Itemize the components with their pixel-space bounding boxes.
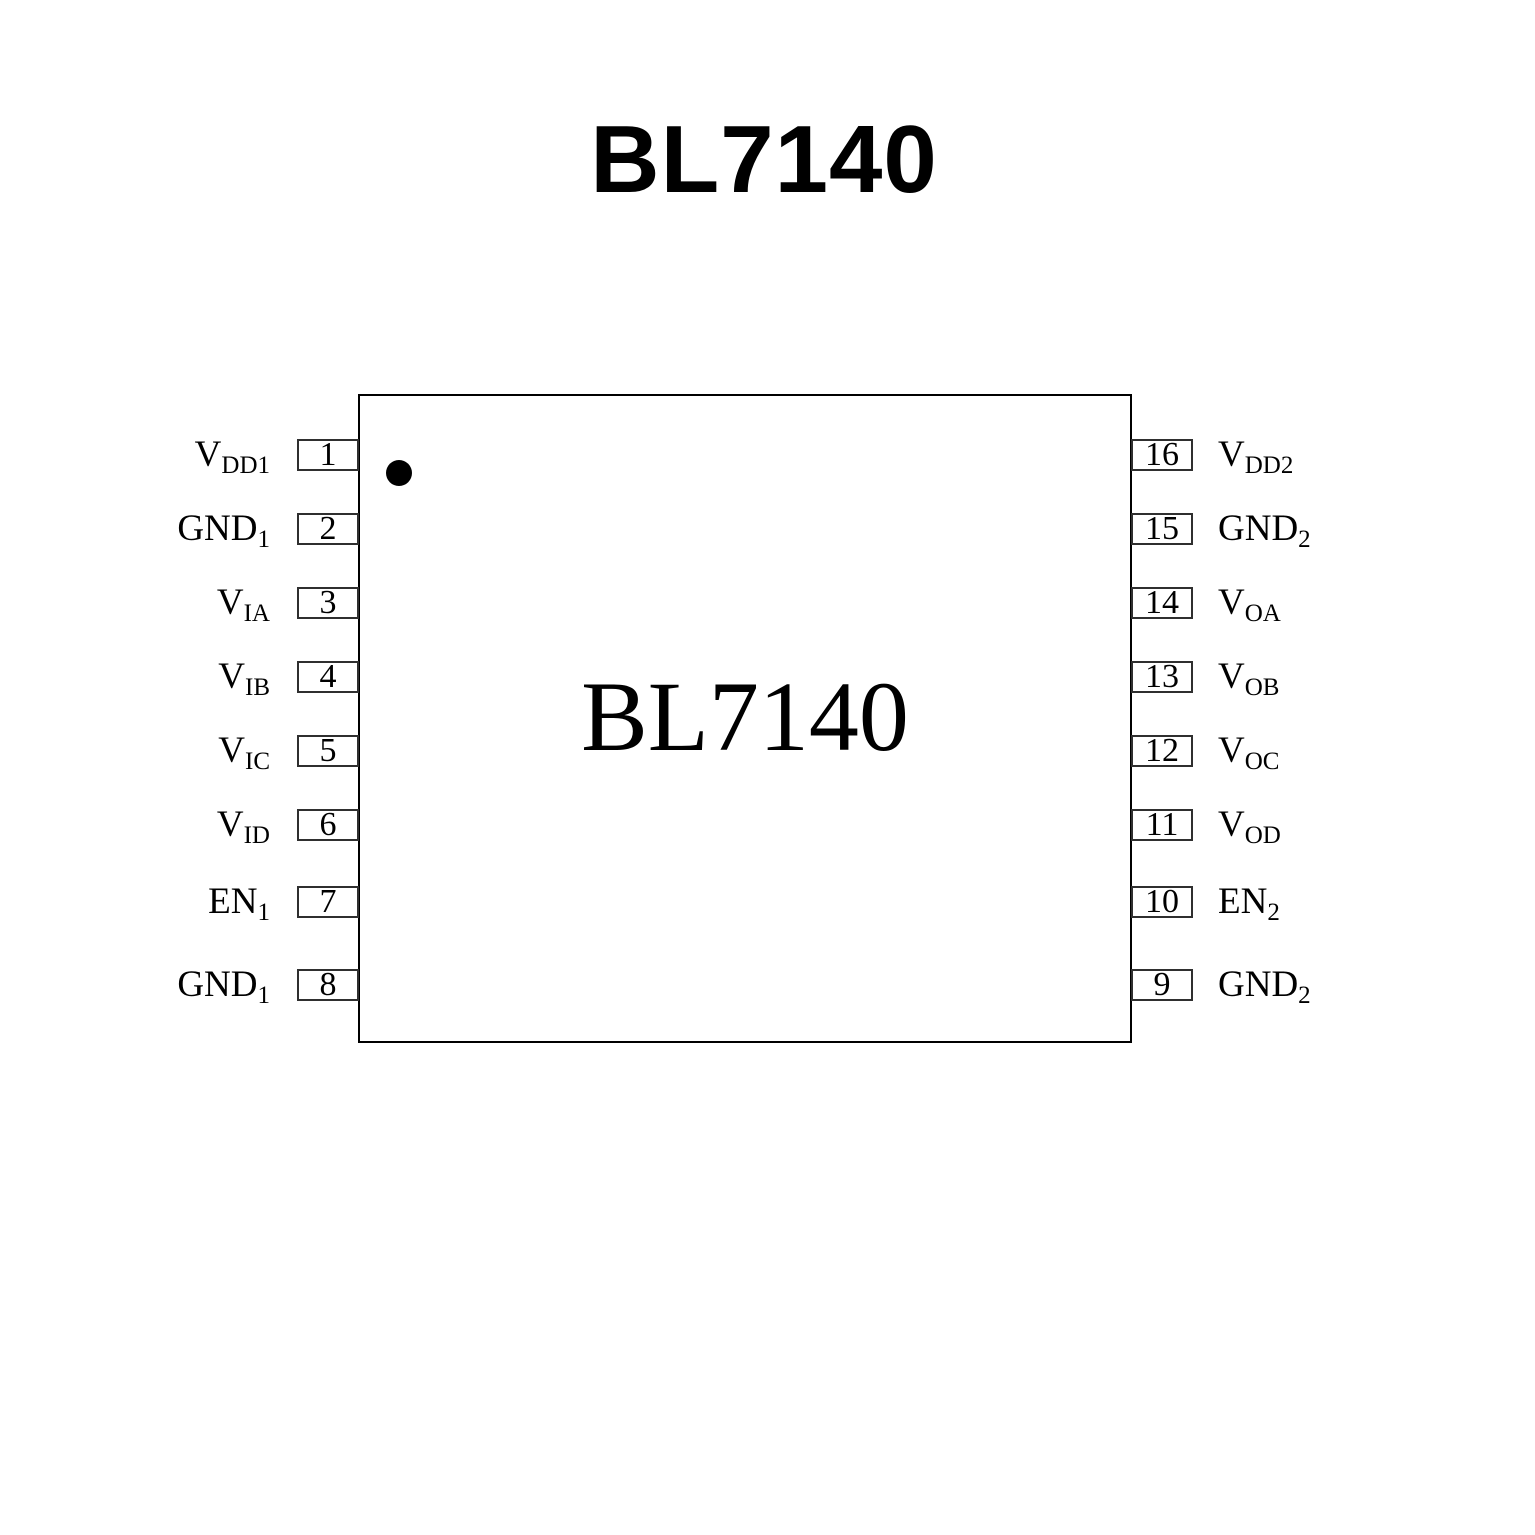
pin-row-right-13: 13 VOB <box>1131 657 1535 697</box>
pin-number-7: 7 <box>320 885 337 919</box>
pin-label-vib: VIB <box>218 657 270 697</box>
pin-box-11: 11 <box>1131 809 1193 841</box>
pin-label-vdd2: VDD2 <box>1218 435 1293 475</box>
pin-label-via: VIA <box>217 583 270 623</box>
pin-row-right-9: 9 GND2 <box>1131 965 1535 1005</box>
pin-label-vdd1: VDD1 <box>195 435 270 475</box>
pin-row-left-1: VDD1 1 <box>0 435 359 475</box>
pin-number-9: 9 <box>1154 968 1171 1002</box>
pin-label-voa: VOA <box>1218 583 1281 623</box>
pin-box-1: 1 <box>297 439 359 471</box>
pin-row-left-4: VIB 4 <box>0 657 359 697</box>
pin-label-vic: VIC <box>218 731 270 771</box>
pin-number-4: 4 <box>320 660 337 694</box>
pin-box-9: 9 <box>1131 969 1193 1001</box>
pin-number-3: 3 <box>320 586 337 620</box>
pin-number-12: 12 <box>1145 734 1179 768</box>
pin-row-right-16: 16 VDD2 <box>1131 435 1535 475</box>
pin-label-vob: VOB <box>1218 657 1279 697</box>
pin-number-8: 8 <box>320 968 337 1002</box>
pin-number-6: 6 <box>320 808 337 842</box>
pin-number-11: 11 <box>1146 808 1179 842</box>
pin-number-13: 13 <box>1145 660 1179 694</box>
pin-row-left-3: VIA 3 <box>0 583 359 623</box>
pin-row-right-15: 15 GND2 <box>1131 509 1535 549</box>
pin-1-indicator-dot-icon <box>386 460 412 486</box>
pin-box-12: 12 <box>1131 735 1193 767</box>
pin-number-5: 5 <box>320 734 337 768</box>
pin-label-en1: EN1 <box>208 882 270 922</box>
pin-label-vod: VOD <box>1218 805 1281 845</box>
pin-box-6: 6 <box>297 809 359 841</box>
pin-row-right-14: 14 VOA <box>1131 583 1535 623</box>
pin-row-left-7: EN1 7 <box>0 882 359 922</box>
chip-label: BL7140 <box>358 664 1132 770</box>
pin-number-1: 1 <box>320 438 337 472</box>
pin-row-right-10: 10 EN2 <box>1131 882 1535 922</box>
pin-box-7: 7 <box>297 886 359 918</box>
pin-label-gnd1-top: GND1 <box>177 509 270 549</box>
pin-row-right-12: 12 VOC <box>1131 731 1535 771</box>
pin-box-16: 16 <box>1131 439 1193 471</box>
pinout-diagram-page: BL7140 BL7140 VDD1 1 GND1 2 VIA 3 VIB 4 … <box>0 0 1535 1535</box>
pin-box-2: 2 <box>297 513 359 545</box>
pin-box-15: 15 <box>1131 513 1193 545</box>
pin-box-14: 14 <box>1131 587 1193 619</box>
pin-box-4: 4 <box>297 661 359 693</box>
pin-label-gnd1-bottom: GND1 <box>177 965 270 1005</box>
pin-box-10: 10 <box>1131 886 1193 918</box>
pin-number-2: 2 <box>320 512 337 546</box>
pin-label-en2: EN2 <box>1218 882 1280 922</box>
pin-box-3: 3 <box>297 587 359 619</box>
pin-row-left-2: GND1 2 <box>0 509 359 549</box>
pin-box-8: 8 <box>297 969 359 1001</box>
pin-number-14: 14 <box>1145 586 1179 620</box>
pin-label-gnd2-top: GND2 <box>1218 509 1311 549</box>
pin-number-16: 16 <box>1145 438 1179 472</box>
pin-label-voc: VOC <box>1218 731 1279 771</box>
pin-row-right-11: 11 VOD <box>1131 805 1535 845</box>
pin-box-5: 5 <box>297 735 359 767</box>
page-title: BL7140 <box>0 112 1528 208</box>
pin-number-15: 15 <box>1145 512 1179 546</box>
pin-label-gnd2-bottom: GND2 <box>1218 965 1311 1005</box>
pin-number-10: 10 <box>1145 885 1179 919</box>
pin-row-left-5: VIC 5 <box>0 731 359 771</box>
pin-box-13: 13 <box>1131 661 1193 693</box>
pin-row-left-8: GND1 8 <box>0 965 359 1005</box>
pin-label-vid: VID <box>217 805 270 845</box>
pin-row-left-6: VID 6 <box>0 805 359 845</box>
